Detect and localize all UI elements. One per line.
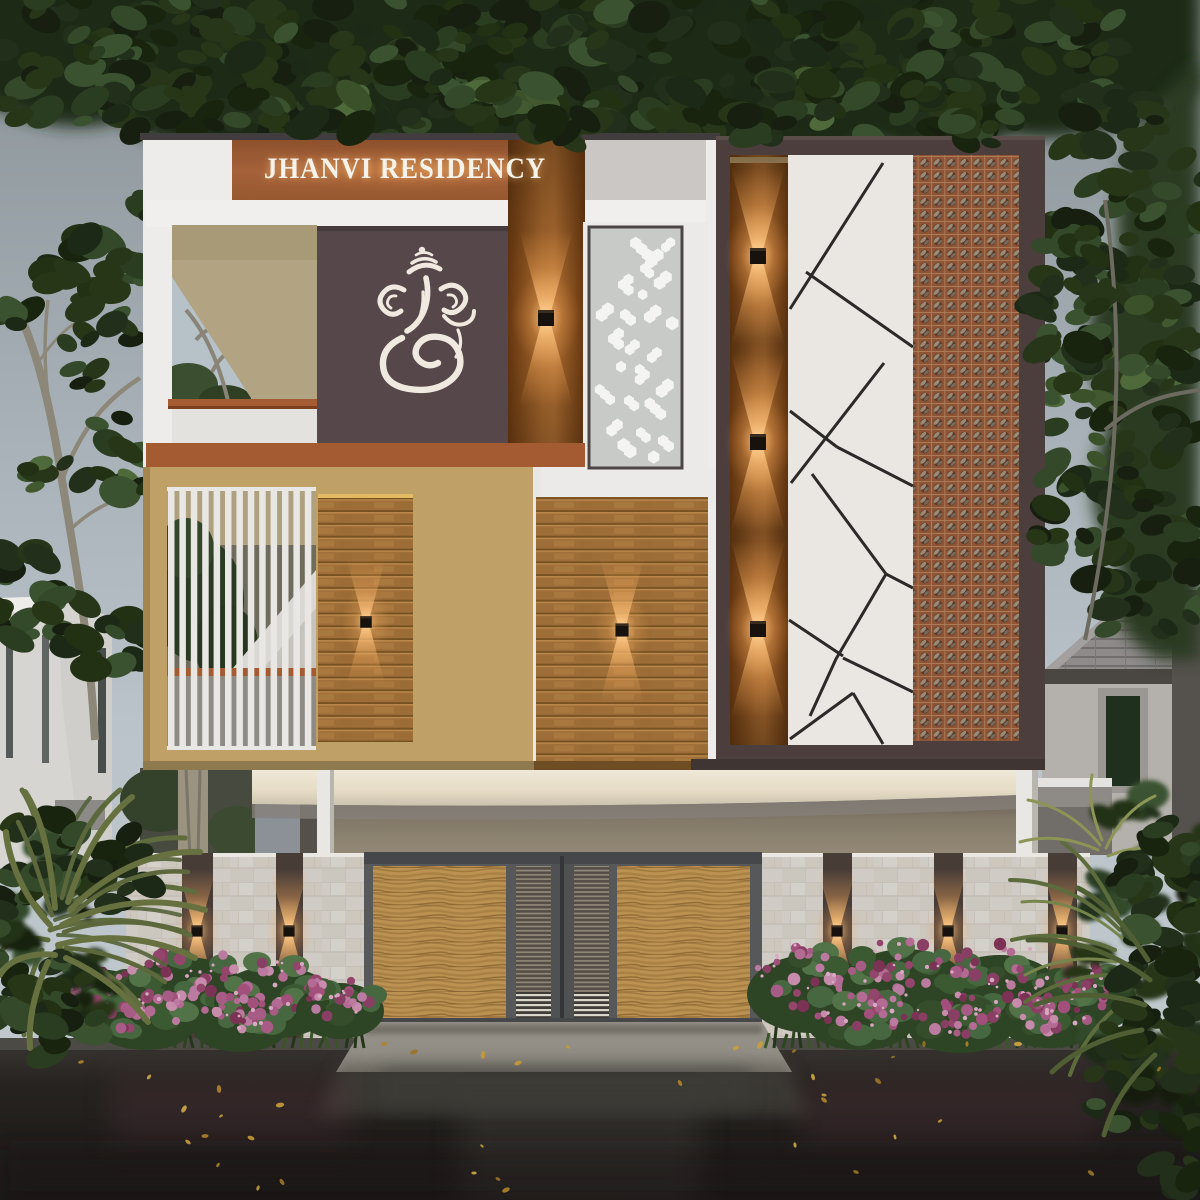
- svg-text:JHANVI RESIDENCY: JHANVI RESIDENCY: [264, 152, 546, 185]
